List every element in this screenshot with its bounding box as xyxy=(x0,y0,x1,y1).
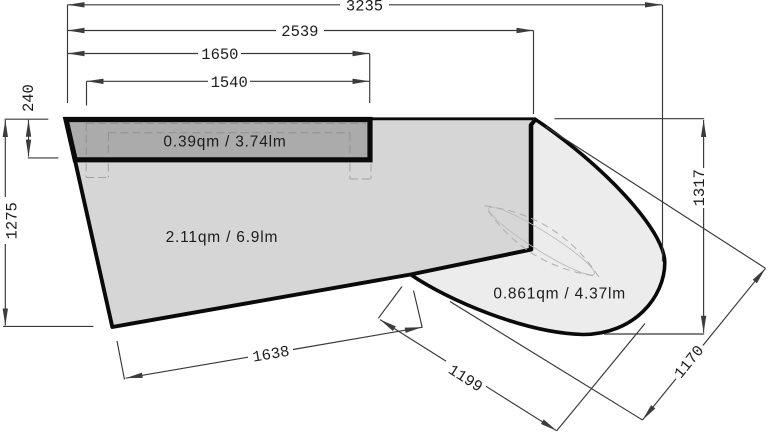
svg-text:1650: 1650 xyxy=(201,46,238,64)
svg-text:0.39qm / 3.74lm: 0.39qm / 3.74lm xyxy=(163,134,286,151)
svg-text:240: 240 xyxy=(20,84,38,112)
svg-text:2539: 2539 xyxy=(281,23,318,41)
svg-text:1275: 1275 xyxy=(4,202,22,239)
svg-text:1317: 1317 xyxy=(691,169,709,206)
svg-text:2.11qm / 6.9lm: 2.11qm / 6.9lm xyxy=(166,229,279,246)
svg-text:0.861qm / 4.37lm: 0.861qm / 4.37lm xyxy=(493,285,626,302)
svg-text:3235: 3235 xyxy=(346,0,383,15)
svg-text:1540: 1540 xyxy=(211,74,248,92)
